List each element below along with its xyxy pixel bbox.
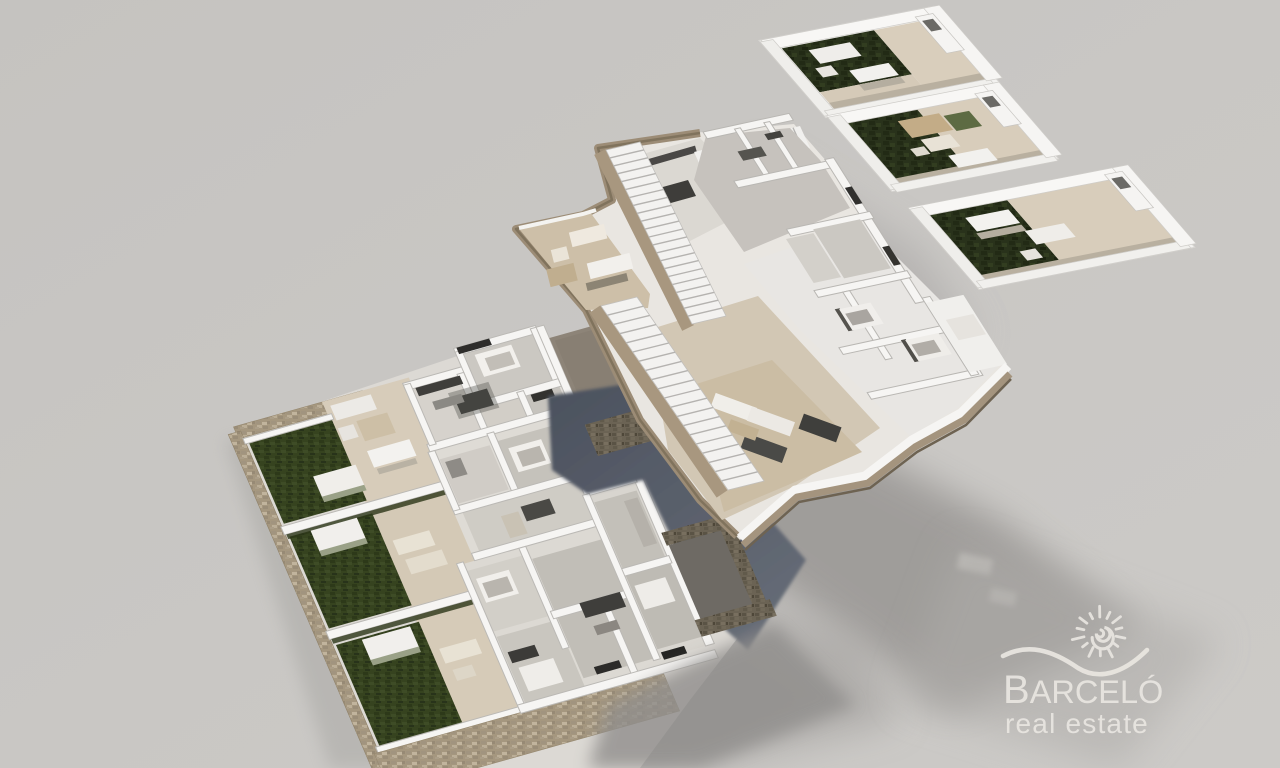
svg-text:real estate: real estate [1005,708,1149,739]
svg-text:BARCELÓ: BARCELÓ [1003,668,1163,712]
